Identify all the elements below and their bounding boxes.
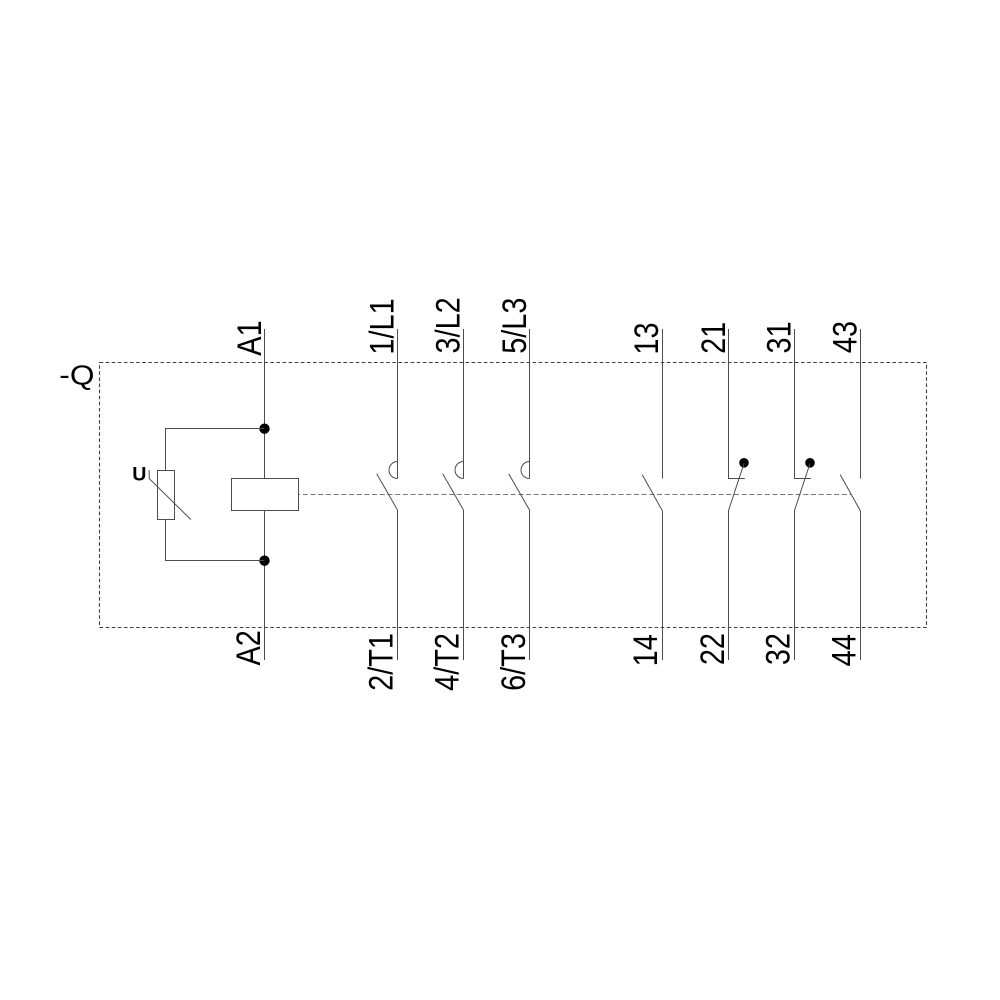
svg-text:A1: A1 — [230, 320, 269, 355]
svg-text:14: 14 — [626, 634, 665, 666]
svg-text:22: 22 — [693, 633, 732, 665]
svg-text:3/L2: 3/L2 — [428, 297, 467, 353]
svg-text:4/T2: 4/T2 — [427, 633, 466, 691]
svg-text:-Q: -Q — [59, 360, 94, 391]
svg-text:32: 32 — [758, 633, 797, 665]
svg-text:1/L1: 1/L1 — [362, 298, 401, 354]
svg-text:31: 31 — [759, 321, 798, 353]
svg-text:2/T1: 2/T1 — [361, 633, 400, 691]
svg-text:44: 44 — [824, 634, 863, 666]
svg-text:6/T3: 6/T3 — [494, 633, 533, 691]
svg-text:U: U — [132, 464, 146, 486]
svg-text:43: 43 — [825, 321, 864, 353]
svg-text:A2: A2 — [229, 630, 268, 665]
svg-text:21: 21 — [694, 322, 733, 354]
svg-text:5/L3: 5/L3 — [495, 298, 534, 354]
svg-text:13: 13 — [627, 322, 666, 354]
